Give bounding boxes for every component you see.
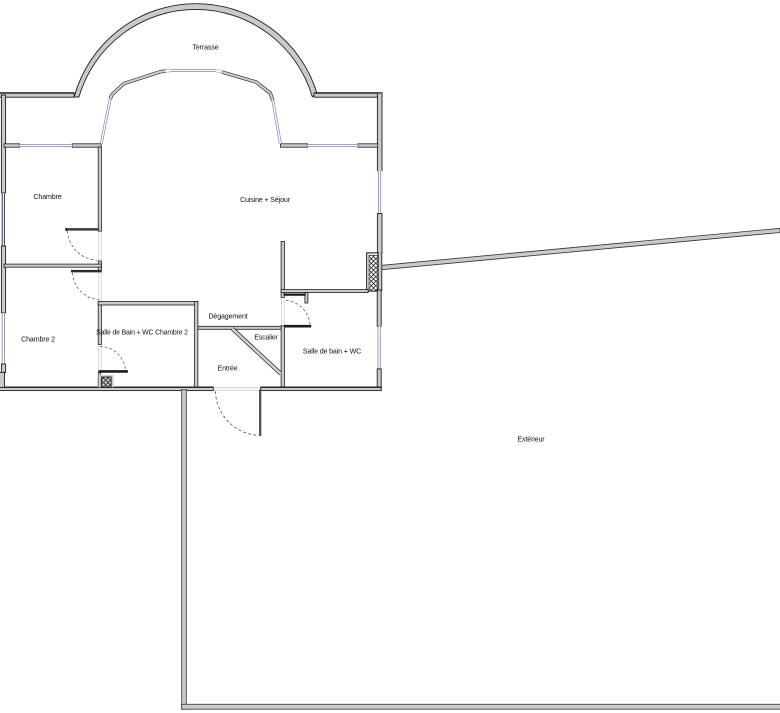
svg-text:Chambre 2: Chambre 2 [21,336,55,344]
svg-text:Salle de bain + WC: Salle de bain + WC [303,348,361,356]
svg-text:Dégagement: Dégagement [208,313,247,321]
svg-text:Chambre: Chambre [33,193,61,201]
svg-text:Terrasse: Terrasse [192,44,218,52]
svg-text:Entrée: Entrée [217,365,237,373]
svg-text:Extérieur: Extérieur [517,436,545,444]
svg-text:Salle de Bain + WC Chambre 2: Salle de Bain + WC Chambre 2 [96,330,188,337]
svg-text:Cuisine + Séjour: Cuisine + Séjour [240,196,291,204]
svg-text:Escalier: Escalier [254,335,278,342]
